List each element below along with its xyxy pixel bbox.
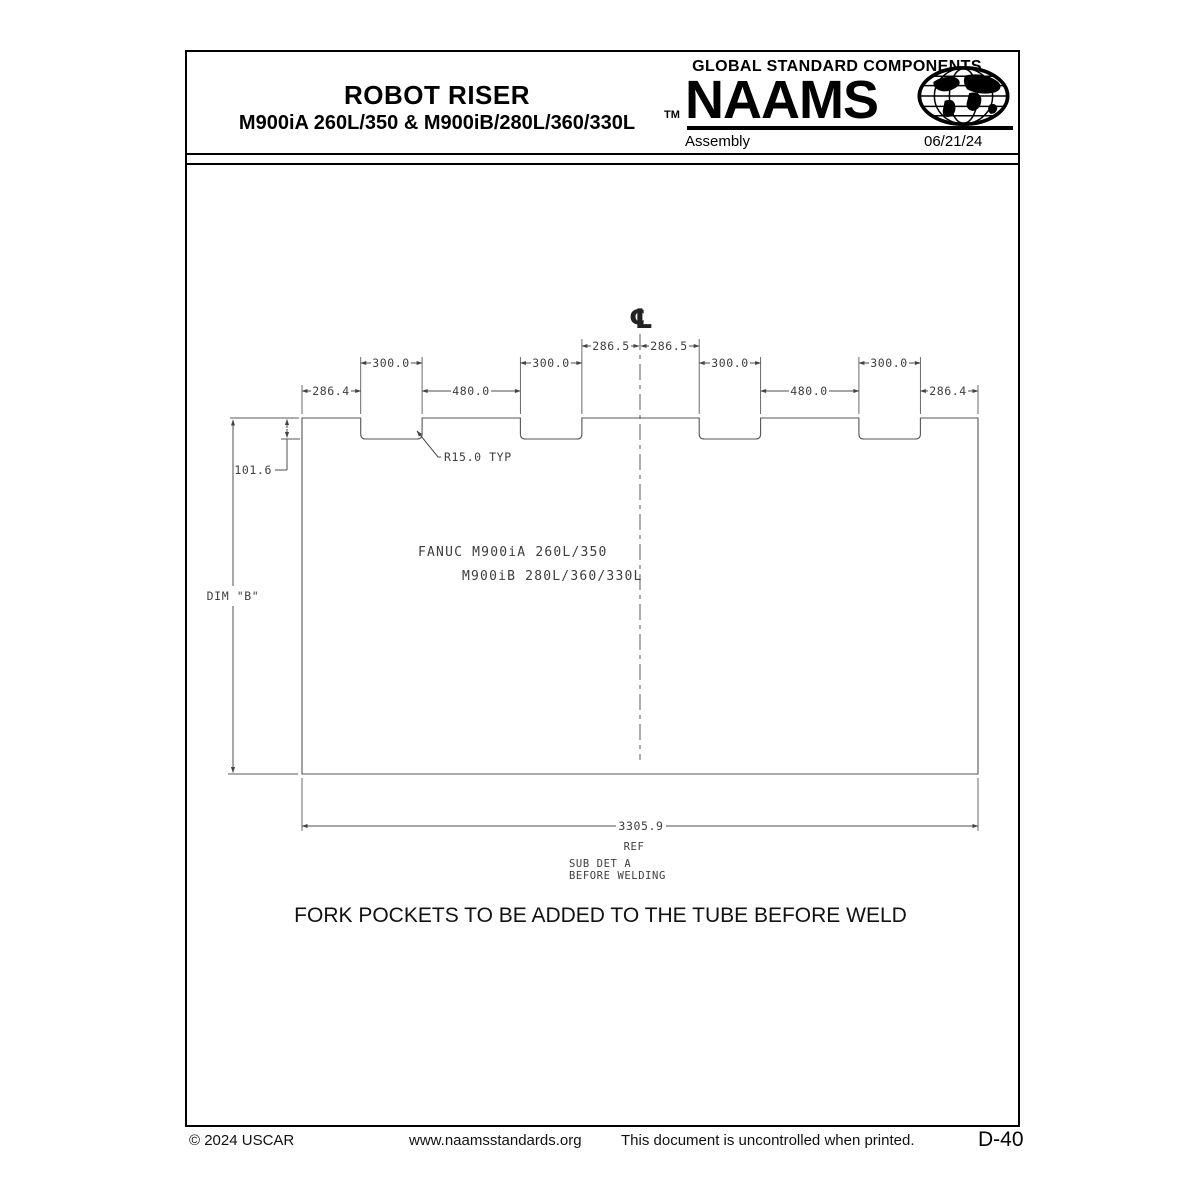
- dim-center-halves: 286.5 286.5: [582, 339, 699, 353]
- radius-note-label: R15.0 TYP: [444, 450, 512, 464]
- page-title: ROBOT RISER: [197, 80, 677, 111]
- robot-model-line1: FANUC M900iA 260L/350: [418, 545, 608, 560]
- robot-model-line2: M900iB 280L/360/330L: [462, 569, 643, 584]
- dim-label-pocket-3: 300.0: [711, 356, 749, 370]
- extension-lines: [228, 339, 978, 831]
- dim-label-center-right: 286.5: [650, 339, 688, 353]
- dim-label-pocket-2: 300.0: [532, 356, 570, 370]
- brand-logo-text: NAAMS: [685, 73, 878, 127]
- globe-icon: [916, 65, 1011, 132]
- page-subtitle: M900iA 260L/350 & M900iB/280L/360/330L: [197, 112, 677, 135]
- dim-pocket-depth: 101.6: [234, 420, 287, 478]
- dim-pocket-widths: 300.0 300.0 300.0 300.0: [361, 356, 921, 370]
- dim-label-gap-right: 480.0: [790, 384, 828, 398]
- dim-label-edge-right: 286.4: [929, 384, 967, 398]
- robot-model-annotation: FANUC M900iA 260L/350 M900iB 280L/360/33…: [418, 545, 643, 584]
- header-date: 06/21/24: [924, 133, 982, 150]
- drawing-note: FORK POCKETS TO BE ADDED TO THE TUBE BEF…: [185, 904, 1016, 928]
- dim-label-pocket-4: 300.0: [870, 356, 908, 370]
- header-divider-top: [187, 153, 1018, 155]
- trademark-label: TM: [664, 109, 680, 121]
- footer-website-link[interactable]: www.naamsstandards.org: [409, 1132, 582, 1149]
- radius-callout: R15.0 TYP: [417, 431, 512, 464]
- footer-page-number: D-40: [978, 1128, 1024, 1152]
- dim-label-pocket-1: 300.0: [372, 356, 410, 370]
- footer-disclaimer: This document is uncontrolled when print…: [621, 1132, 915, 1149]
- dim-label-overall-length: 3305.9: [618, 819, 663, 833]
- centerline-symbol: ℄: [629, 304, 653, 335]
- sub-detail-line2: BEFORE WELDING: [569, 870, 666, 882]
- footer-copyright: © 2024 USCAR: [189, 1132, 294, 1149]
- robot-riser-drawing: ℄ 286.5 286.5 300.0 300.0: [185, 165, 1016, 900]
- brand-underline: [687, 126, 1013, 130]
- sub-detail-line1: SUB DET A: [569, 858, 631, 870]
- dim-label-gap-left: 480.0: [452, 384, 490, 398]
- dim-label-pocket-depth: 101.6: [234, 463, 272, 477]
- dim-label-ref: REF: [624, 841, 645, 853]
- dim-label-center-left: 286.5: [592, 339, 630, 353]
- dim-label-edge-left: 286.4: [312, 384, 350, 398]
- header-category: Assembly: [685, 133, 750, 150]
- dim-overall-length: 3305.9 REF SUB DET A BEFORE WELDING: [302, 819, 978, 882]
- dim-label-height: DIM "B": [207, 589, 260, 603]
